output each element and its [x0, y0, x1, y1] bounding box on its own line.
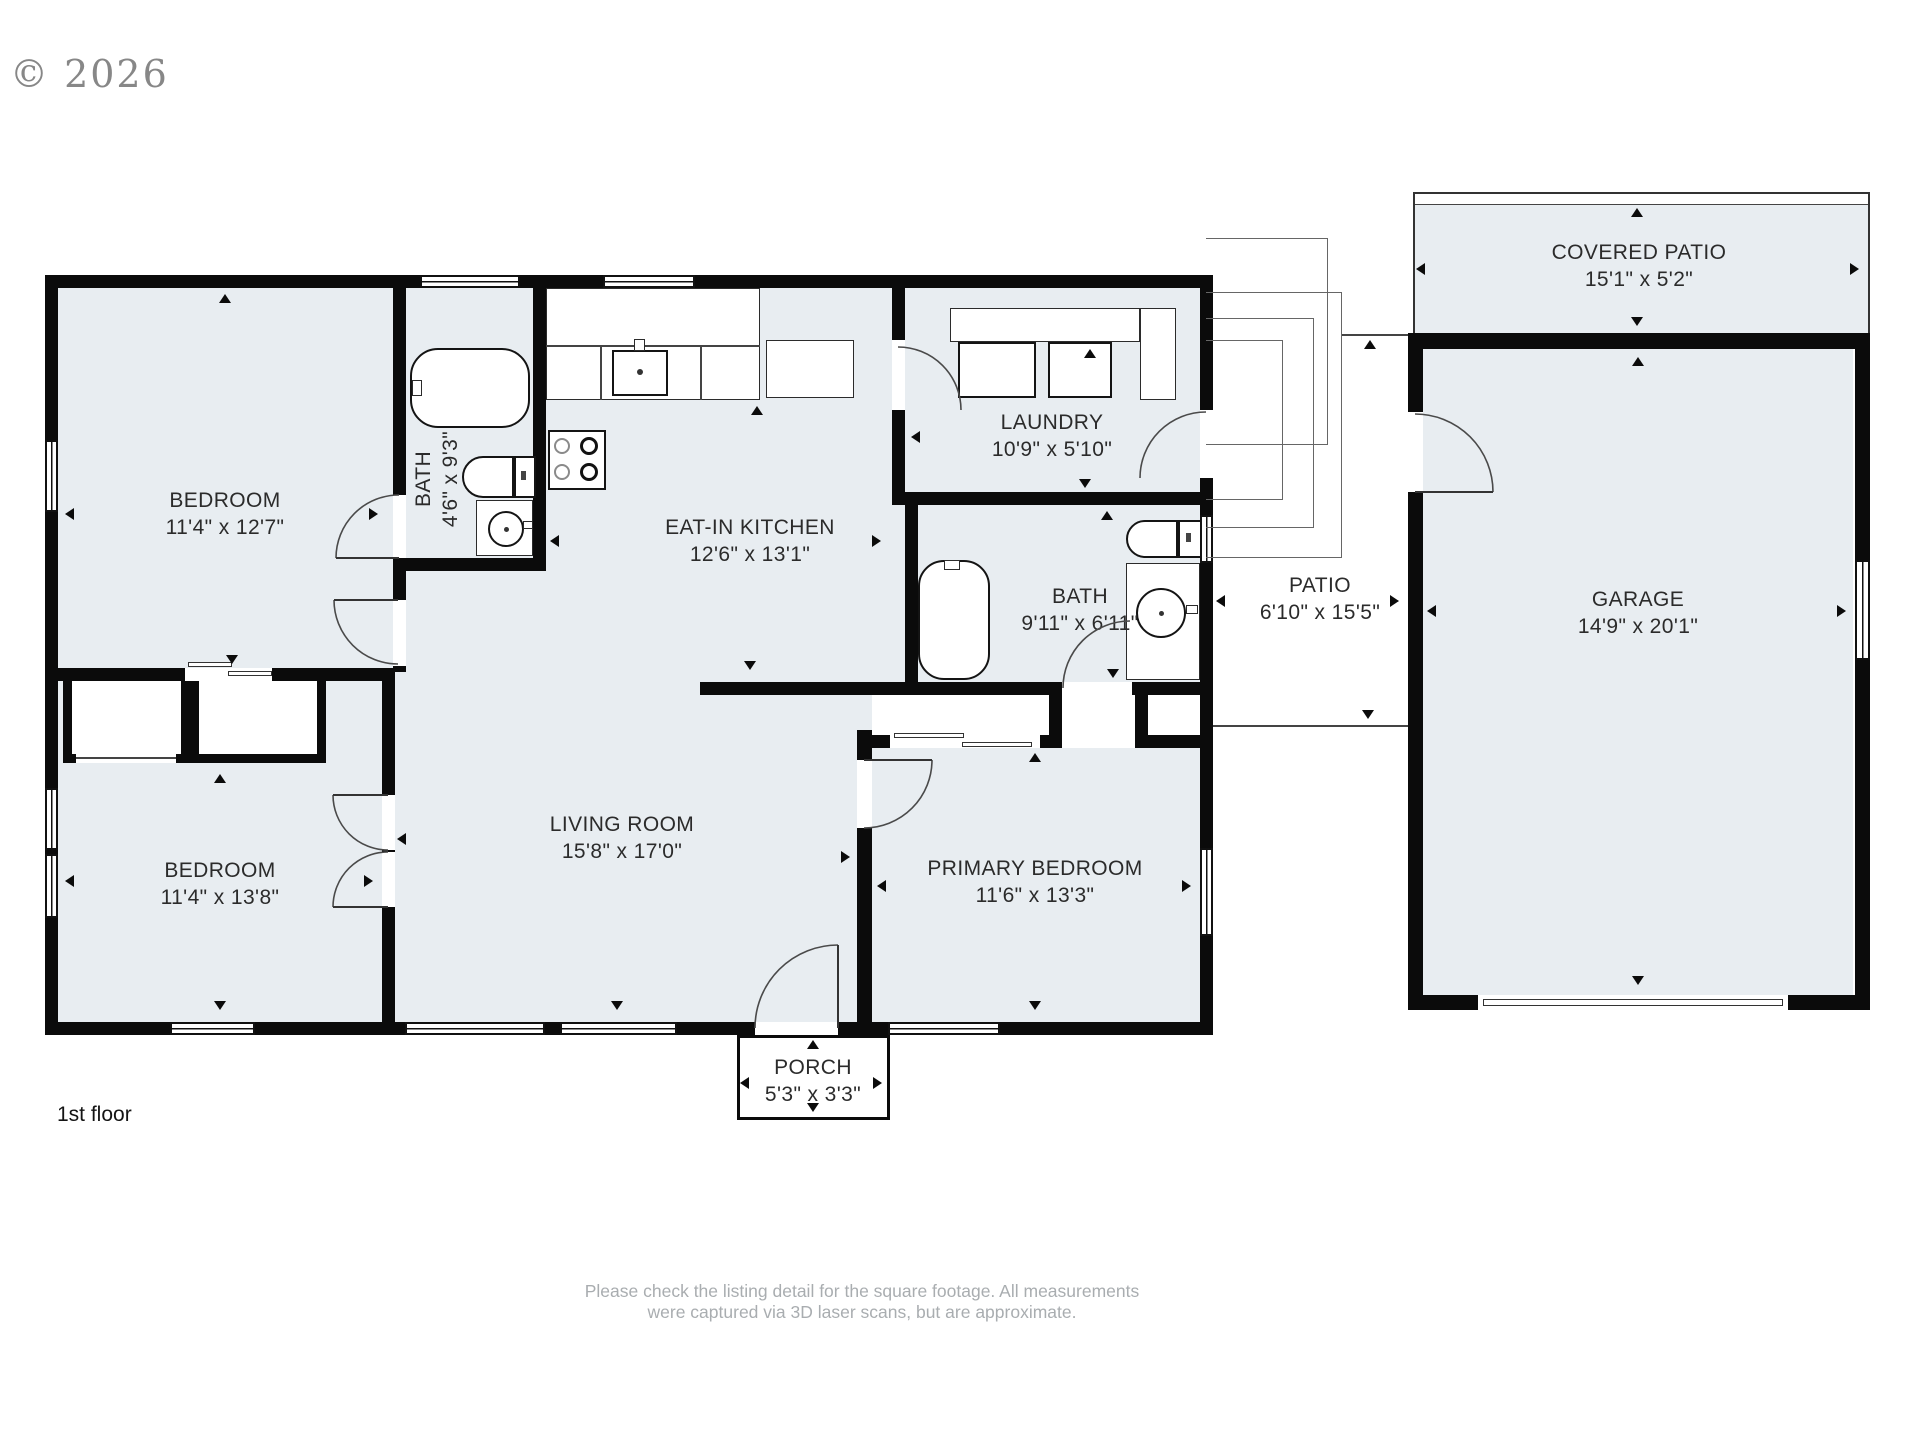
toilet-button	[1186, 533, 1191, 542]
dimension-arrow	[226, 655, 238, 664]
door-opening	[382, 852, 395, 907]
dimension-arrow	[1631, 208, 1643, 217]
window	[405, 1022, 545, 1035]
room-label-bedroom1: BEDROOM 11'4" x 12'7"	[75, 487, 375, 541]
dimension-arrow	[1182, 880, 1191, 892]
dimension-arrow	[1107, 669, 1119, 678]
dimension-arrow	[740, 1077, 749, 1089]
floor-plan-page: BEDROOM 11'4" x 12'7" BATH 4'6" x 9'3" E…	[0, 0, 1920, 1440]
door-opening	[857, 760, 872, 828]
dimension-arrow	[1631, 317, 1643, 326]
room-dims: 10'9" x 5'10"	[902, 436, 1202, 463]
dimension-arrow	[219, 294, 231, 303]
wall	[1408, 333, 1870, 349]
burner-icon	[580, 463, 598, 481]
primary-closet-interior	[1148, 695, 1200, 735]
garage-vehicle-door-panel	[1483, 999, 1783, 1006]
dimension-arrow	[1632, 357, 1644, 366]
wall	[905, 505, 918, 695]
room-name: PATIO	[1170, 572, 1470, 599]
dimension-arrow	[1364, 340, 1376, 349]
door-opening	[393, 600, 406, 666]
window	[1200, 848, 1213, 936]
dimension-arrow	[1101, 511, 1113, 520]
wall	[45, 275, 58, 1035]
dimension-arrow	[1390, 595, 1399, 607]
dimension-arrow	[873, 1077, 882, 1089]
room-dims: 11'4" x 12'7"	[75, 514, 375, 541]
refrigerator	[766, 340, 854, 398]
floor-level-label: 1st floor	[57, 1103, 132, 1127]
tub-faucet-icon	[944, 560, 960, 570]
sink-drain	[504, 527, 509, 532]
window	[1855, 560, 1870, 660]
copyright-watermark: © 2026	[10, 52, 169, 96]
sink-drain	[637, 369, 643, 375]
room-label-covered-patio: COVERED PATIO 15'1" x 5'2"	[1489, 239, 1789, 293]
room-label-bedroom2: BEDROOM 11'4" x 13'8"	[70, 857, 370, 911]
room-dims: 12'6" x 13'1"	[600, 541, 900, 568]
window	[45, 854, 58, 918]
dimension-arrow	[65, 875, 74, 887]
dimension-arrow	[397, 833, 406, 845]
room-label-patio: PATIO 6'10" x 15'5"	[1170, 572, 1470, 626]
closet-wall	[181, 681, 190, 763]
dimension-arrow	[364, 875, 373, 887]
kitchen-faucet-icon	[634, 339, 645, 351]
disclaimer-line: Please check the listing detail for the …	[500, 1281, 1224, 1302]
door-opening	[393, 495, 406, 558]
disclaimer-line: were captured via 3D laser scans, but ar…	[500, 1302, 1224, 1323]
room-name: LAUNDRY	[902, 409, 1202, 436]
dimension-arrow	[1084, 349, 1096, 358]
disclaimer-text: Please check the listing detail for the …	[500, 1281, 1224, 1323]
laundry-cabinet	[1140, 308, 1176, 400]
window	[420, 275, 520, 288]
dimension-arrow	[1079, 479, 1091, 488]
dimension-arrow	[369, 508, 378, 520]
room-dims: 4'6" x 9'3"	[437, 329, 464, 629]
dimension-arrow	[214, 1001, 226, 1010]
counter-divider-line	[600, 347, 602, 400]
room-label-porch: PORCH 5'3" x 3'3"	[663, 1054, 963, 1108]
toilet-button	[521, 471, 526, 480]
patio-edge-line	[1342, 334, 1408, 336]
room-name: GARAGE	[1488, 586, 1788, 613]
primary-closet-interior	[872, 695, 1049, 735]
dimension-arrow	[911, 431, 920, 443]
door-opening	[1062, 682, 1132, 695]
dimension-arrow	[1427, 605, 1436, 617]
dimension-arrow	[872, 535, 881, 547]
dimension-arrow	[877, 880, 886, 892]
wall	[905, 492, 1200, 505]
room-label-laundry: LAUNDRY 10'9" x 5'10"	[902, 409, 1202, 463]
room-dims: 6'10" x 15'5"	[1170, 599, 1470, 626]
burner-icon	[554, 438, 570, 454]
room-label-garage: GARAGE 14'9" x 20'1"	[1488, 586, 1788, 640]
closet-wall	[190, 681, 199, 763]
room-name: BEDROOM	[75, 487, 375, 514]
closet-wall	[317, 681, 326, 763]
garage-floor	[1421, 349, 1853, 995]
closet-interior	[199, 681, 317, 754]
room-label-primary: PRIMARY BEDROOM 11'6" x 13'3"	[885, 855, 1185, 909]
window	[45, 788, 58, 850]
room-name: EAT-IN KITCHEN	[600, 514, 900, 541]
sliding-door-panel	[228, 671, 272, 676]
counter-edge-line	[546, 345, 760, 347]
door-opening	[382, 795, 395, 850]
dimension-arrow	[1362, 710, 1374, 719]
room-dims: 11'6" x 13'3"	[885, 882, 1185, 909]
window	[45, 440, 58, 512]
sink-faucet-icon	[523, 521, 533, 529]
burner-icon	[554, 464, 570, 480]
closet-door-line	[76, 757, 176, 759]
laundry-counter	[950, 308, 1140, 342]
closet-interior	[72, 681, 181, 754]
window	[170, 1022, 255, 1035]
patio-edge-line	[1213, 725, 1408, 727]
window	[560, 1022, 677, 1035]
room-name: BATH	[410, 329, 437, 629]
wall	[1135, 695, 1148, 735]
washer	[958, 342, 1036, 398]
dimension-arrow	[550, 535, 559, 547]
garage-door-opening	[1408, 412, 1423, 492]
room-name: PORCH	[663, 1054, 963, 1081]
closet-wall	[63, 681, 72, 763]
dimension-arrow	[1837, 605, 1846, 617]
dimension-arrow	[841, 851, 850, 863]
room-name: COVERED PATIO	[1489, 239, 1789, 266]
counter-divider-line	[700, 347, 702, 400]
room-name: BEDROOM	[70, 857, 370, 884]
dimension-arrow	[1632, 976, 1644, 985]
front-door-opening	[755, 1022, 838, 1035]
sliding-door-panel	[962, 742, 1032, 747]
window	[603, 275, 695, 288]
room-name: PRIMARY BEDROOM	[885, 855, 1185, 882]
toilet-bowl-icon	[462, 456, 514, 498]
dimension-arrow	[1029, 1001, 1041, 1010]
room-label-bath1: BATH 4'6" x 9'3"	[410, 329, 464, 629]
room-dims: 14'9" x 20'1"	[1488, 613, 1788, 640]
window	[888, 1022, 1000, 1035]
wall	[533, 288, 546, 571]
wall	[1855, 333, 1870, 1010]
burner-icon	[580, 437, 598, 455]
room-label-kitchen: EAT-IN KITCHEN 12'6" x 13'1"	[600, 514, 900, 568]
patio-steps	[1206, 340, 1283, 500]
dryer	[1048, 342, 1112, 398]
room-label-living: LIVING ROOM 15'8" x 17'0"	[472, 811, 772, 865]
dimension-arrow	[1416, 263, 1425, 275]
dimension-arrow	[807, 1103, 819, 1112]
door-opening	[1062, 735, 1135, 748]
dimension-arrow	[744, 661, 756, 670]
room-dims: 15'1" x 5'2"	[1489, 266, 1789, 293]
door-opening	[892, 340, 905, 410]
room-dims: 11'4" x 13'8"	[70, 884, 370, 911]
dimension-arrow	[1216, 595, 1225, 607]
sliding-door-panel	[894, 733, 964, 738]
closet-door-opening	[76, 754, 176, 763]
dimension-arrow	[214, 774, 226, 783]
toilet-bowl-icon	[1126, 520, 1178, 558]
dimension-arrow	[807, 1040, 819, 1049]
dimension-arrow	[65, 508, 74, 520]
dimension-arrow	[751, 406, 763, 415]
room-dims: 15'8" x 17'0"	[472, 838, 772, 865]
wall	[1049, 695, 1062, 735]
room-name: LIVING ROOM	[472, 811, 772, 838]
dimension-arrow	[611, 1001, 623, 1010]
dimension-arrow	[1029, 753, 1041, 762]
dimension-arrow	[1850, 263, 1859, 275]
